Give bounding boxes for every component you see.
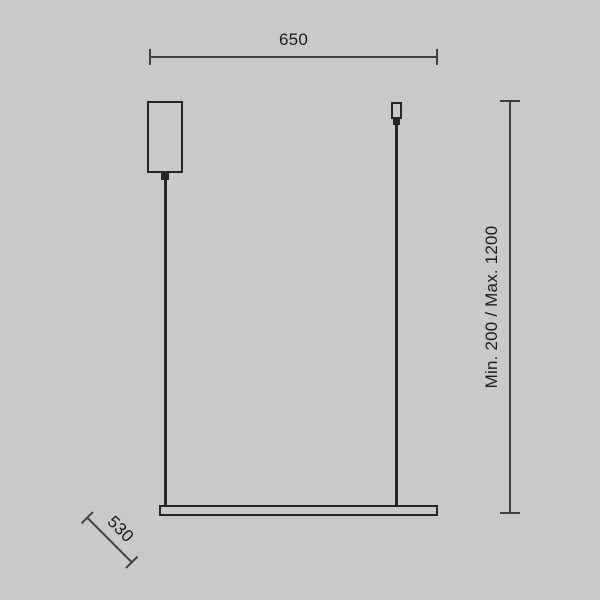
- width-dimension-label: 650: [150, 30, 437, 50]
- depth-dimension: 530: [87, 517, 133, 563]
- light-bar: [159, 505, 438, 516]
- height-dimension-label: Min. 200 / Max. 1200: [482, 207, 502, 407]
- width-dimension: 650: [150, 30, 437, 66]
- cord-grip-stem: [393, 118, 400, 125]
- width-dimension-line: [150, 56, 437, 58]
- right-suspension-wire: [395, 125, 398, 506]
- depth-dimension-label: 530: [91, 500, 150, 559]
- left-suspension-wire: [164, 180, 167, 506]
- height-dimension-tick-bottom: [500, 512, 520, 514]
- canopy-stem: [161, 172, 169, 180]
- height-dimension-line: [509, 101, 511, 513]
- height-dimension-tick-top: [500, 100, 520, 102]
- height-dimension: Min. 200 / Max. 1200: [500, 101, 520, 513]
- cord-grip: [391, 102, 402, 119]
- dimension-diagram: 650 Min. 200 / Max. 1200 530: [0, 0, 600, 600]
- width-dimension-tick-right: [436, 49, 438, 65]
- width-dimension-tick-left: [149, 49, 151, 65]
- lamp-canopy: [147, 101, 183, 173]
